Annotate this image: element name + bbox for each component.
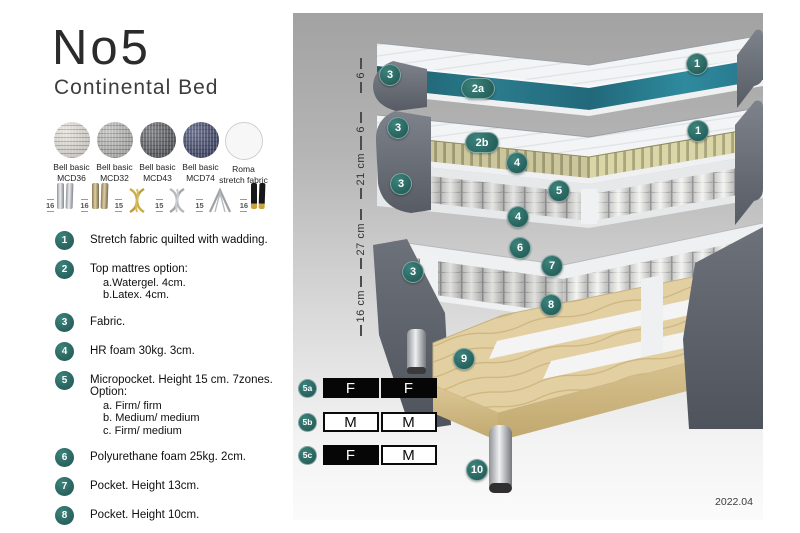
- callout-badge: 8: [540, 294, 562, 316]
- fabric-code: MCD74: [182, 173, 218, 184]
- feature-list: 1 Stretch fabric quilted with wadding. 2…: [55, 231, 285, 533]
- callout-badge: 3: [379, 64, 401, 86]
- dimension-label: 6: [355, 126, 367, 133]
- page-subtitle: Continental Bed: [54, 76, 218, 100]
- silver-cross-leg-icon: [166, 187, 188, 214]
- list-item: 8 Pocket. Height 10cm.: [55, 506, 285, 525]
- fabric-swatch-circle: [54, 122, 90, 158]
- fabric-swatch: Bell basicMCD74: [181, 122, 220, 185]
- firmness-row-badge: 5a: [298, 379, 317, 398]
- leg-height: 16: [46, 202, 54, 210]
- list-item: 6 Polyurethane foam 25kg. 2cm.: [55, 448, 285, 467]
- dimension-label: 16 cm: [355, 290, 367, 322]
- leg-height: 15: [115, 202, 123, 210]
- list-item: 3 Fabric.: [55, 313, 285, 332]
- dimension-marker: 27 cm: [348, 209, 374, 269]
- feature-number-badge: 4: [55, 342, 74, 361]
- feature-text: Top mattres option:: [90, 263, 188, 275]
- feature-subitem: b.Latex. 4cm.: [103, 290, 188, 301]
- fabric-name: Bell basic: [96, 162, 132, 173]
- chrome-cylinder-leg-icon: [57, 183, 73, 214]
- feature-text: HR foam 30kg. 3cm.: [90, 342, 195, 361]
- firmness-row: 5c F M: [298, 445, 439, 465]
- callout-badge: 3: [387, 117, 409, 139]
- fabric-name: Bell basic: [53, 162, 89, 173]
- firmness-row-badge: 5b: [298, 413, 317, 432]
- fabric-name: Bell basic: [182, 162, 218, 173]
- fabric-swatch-circle: [97, 122, 133, 158]
- callout-badge: 1: [687, 120, 709, 142]
- callout-badge: 4: [506, 152, 528, 174]
- callout-badge: 1: [686, 53, 708, 75]
- fabric-swatches: Bell basicMCD36 Bell basicMCD32 Bell bas…: [52, 122, 263, 185]
- callout-badge: 3: [390, 173, 412, 195]
- fabric-swatch: Bell basicMCD36: [52, 122, 91, 185]
- hairpin-leg-icon: [207, 187, 233, 214]
- feature-text: Pocket. Height 10cm.: [90, 506, 199, 525]
- feature-text: Pocket. Height 13cm.: [90, 477, 199, 496]
- middle-mattress-layer: [376, 101, 763, 228]
- metal-leg: [489, 425, 512, 493]
- feature-number-badge: 3: [55, 313, 74, 332]
- leg-option: 16: [46, 183, 73, 214]
- list-item: 4 HR foam 30kg. 3cm.: [55, 342, 285, 361]
- dimension-label: 27 cm: [355, 223, 367, 255]
- feature-subitem: a.Watergel. 4cm.: [103, 278, 188, 289]
- page-title: No5: [52, 20, 151, 76]
- feature-number-badge: 6: [55, 448, 74, 467]
- feature-subitem: c. Firm/ medium: [103, 426, 285, 437]
- fabric-swatch-circle: [183, 122, 219, 158]
- leg-option: 15: [195, 187, 232, 214]
- leg-option: 15: [115, 187, 148, 214]
- leg-option: 15: [155, 187, 188, 214]
- firmness-cell: F: [323, 445, 379, 465]
- callout-badge: 6: [509, 237, 531, 259]
- dimension-label: 6: [355, 72, 367, 79]
- black-gold-leg-icon: [251, 183, 265, 214]
- callout-badge: 5: [548, 180, 570, 202]
- feature-text: Fabric.: [90, 313, 125, 332]
- leg-height: 15: [195, 202, 203, 210]
- fabric-swatch-circle: [140, 122, 176, 158]
- version-stamp: 2022.04: [688, 496, 753, 508]
- callout-badge: 4: [507, 206, 529, 228]
- fabric-swatch-circle: [225, 122, 263, 160]
- dimension-marker: 21 cm: [348, 139, 374, 199]
- callout-badge: 2b: [465, 132, 499, 153]
- bed-diagram-panel: 6 6 21 cm 27 cm 16 cm 3 2a 1 3 2b 1 4 5 …: [293, 13, 763, 520]
- product-sheet: No5 Continental Bed Bell basicMCD36 Bell…: [0, 0, 800, 533]
- leg-option: 16: [240, 183, 265, 214]
- fabric-swatch: Romastretch fabric: [224, 122, 263, 185]
- feature-number-badge: 1: [55, 231, 74, 250]
- firmness-row: 5a F F: [298, 378, 439, 398]
- firmness-cell: M: [323, 412, 379, 432]
- feature-number-badge: 5: [55, 371, 74, 390]
- feature-subitem: a. Firm/ firm: [103, 401, 285, 412]
- top-mattress-layer: [373, 30, 763, 116]
- list-item: 2 Top mattres option: a.Watergel. 4cm. b…: [55, 260, 285, 303]
- firmness-row-badge: 5c: [298, 446, 317, 465]
- list-item: 7 Pocket. Height 13cm.: [55, 477, 285, 496]
- gold-cross-leg-icon: [126, 187, 148, 214]
- firmness-cell: M: [381, 412, 437, 432]
- callout-badge: 2a: [461, 78, 495, 99]
- dimension-label: 21 cm: [355, 153, 367, 185]
- fabric-swatch: Bell basicMCD43: [138, 122, 177, 185]
- callout-badge: 9: [453, 348, 475, 370]
- fabric-code: MCD36: [53, 173, 89, 184]
- leg-height: 15: [155, 202, 163, 210]
- callout-badge: 3: [402, 261, 424, 283]
- feature-text: Stretch fabric quilted with wadding.: [90, 231, 268, 250]
- leg-options: 16 16 15 15 15: [46, 183, 265, 214]
- feature-number-badge: 2: [55, 260, 74, 279]
- feature-number-badge: 7: [55, 477, 74, 496]
- fabric-name: Bell basic: [139, 162, 175, 173]
- list-item: 1 Stretch fabric quilted with wadding.: [55, 231, 285, 250]
- list-item: 5 Micropocket. Height 15 cm. 7zones. Opt…: [55, 371, 285, 439]
- fabric-swatch: Bell basicMCD32: [95, 122, 134, 185]
- fabric-code: MCD43: [139, 173, 175, 184]
- callout-badge: 10: [466, 459, 488, 481]
- feature-text: Micropocket. Height 15 cm. 7zones. Optio…: [90, 374, 273, 399]
- fabric-code: MCD32: [96, 173, 132, 184]
- fabric-name: Roma: [219, 164, 268, 175]
- leg-option: 16: [80, 183, 107, 214]
- brass-cylinder-leg-icon: [92, 183, 108, 214]
- firmness-cell: F: [323, 378, 379, 398]
- feature-subitem: b. Medium/ medium: [103, 413, 285, 424]
- dimension-marker: 16 cm: [348, 276, 374, 336]
- feature-number-badge: 8: [55, 506, 74, 525]
- firmness-cell: M: [381, 445, 437, 465]
- firmness-row: 5b M M: [298, 412, 439, 432]
- leg-height: 16: [80, 202, 88, 210]
- firmness-cell: F: [381, 378, 437, 398]
- leg-height: 16: [240, 202, 248, 210]
- feature-text: Polyurethane foam 25kg. 2cm.: [90, 448, 246, 467]
- dimension-marker: 6: [348, 58, 374, 93]
- callout-badge: 7: [541, 255, 563, 277]
